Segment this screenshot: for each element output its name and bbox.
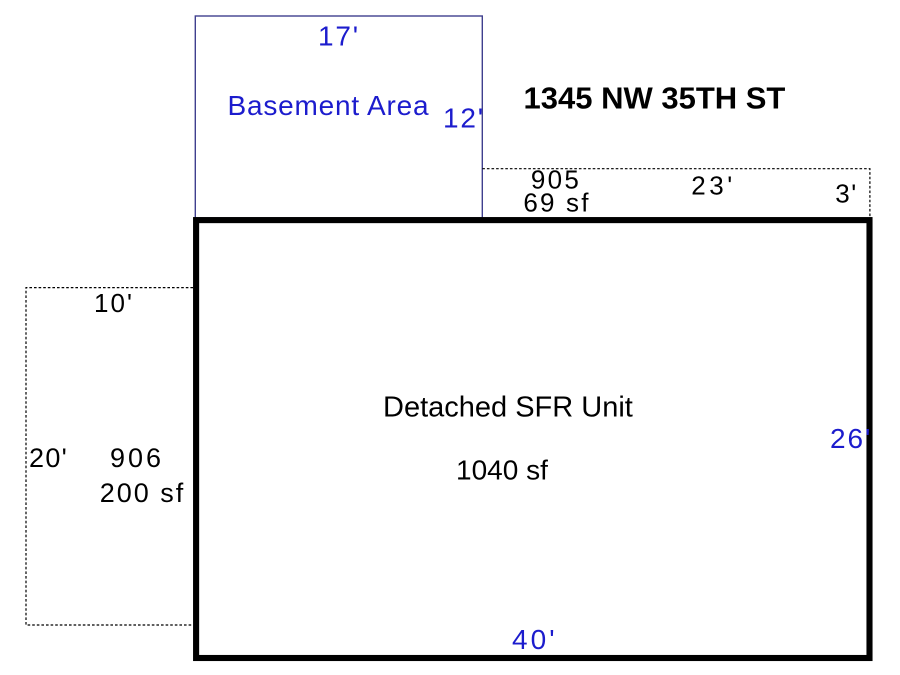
svg-text:200 sf: 200 sf <box>100 478 186 508</box>
svg-text:Basement Area: Basement Area <box>228 90 430 121</box>
svg-text:40': 40' <box>512 624 558 655</box>
svg-text:3': 3' <box>835 179 857 209</box>
svg-text:17': 17' <box>318 20 360 51</box>
svg-text:10': 10' <box>94 288 134 318</box>
svg-text:1040 sf: 1040 sf <box>456 455 548 486</box>
svg-text:906: 906 <box>110 443 164 473</box>
svg-text:69 sf: 69 sf <box>523 188 590 218</box>
svg-text:26': 26' <box>830 423 872 454</box>
svg-text:20': 20' <box>29 443 68 473</box>
svg-text:12': 12' <box>443 103 485 134</box>
svg-text:Detached SFR Unit: Detached SFR Unit <box>383 392 633 424</box>
svg-text:23': 23' <box>691 171 735 201</box>
svg-text:1345 NW 35TH ST: 1345 NW 35TH ST <box>524 81 786 116</box>
